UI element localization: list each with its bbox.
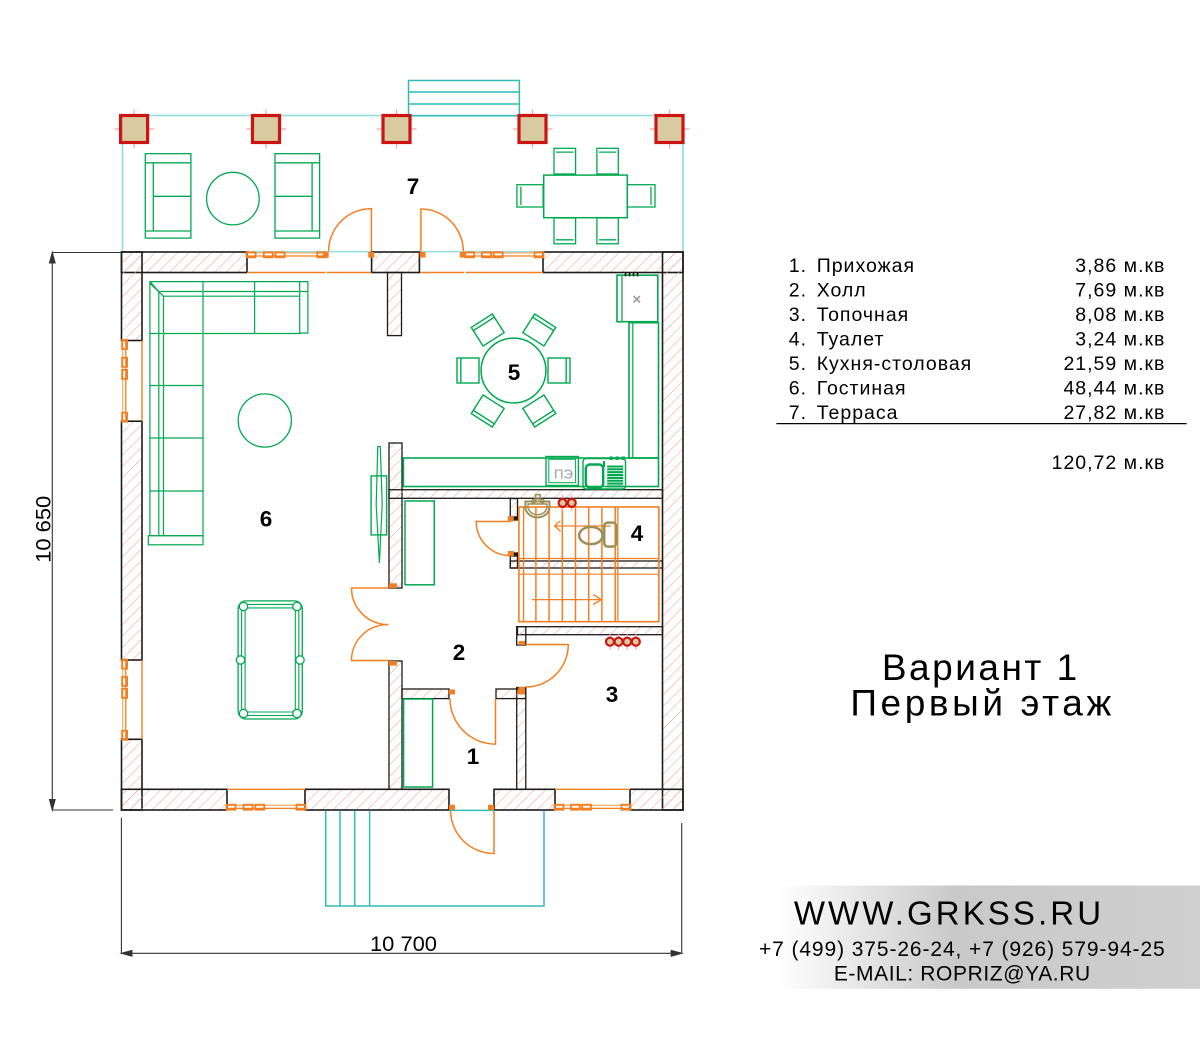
svg-text:27,82 м.кв: 27,82 м.кв — [1063, 402, 1165, 424]
svg-text:4.: 4. — [789, 329, 807, 351]
svg-text:1: 1 — [467, 744, 480, 769]
svg-text:6.: 6. — [789, 378, 807, 400]
svg-text:7.: 7. — [789, 402, 807, 424]
svg-text:120,72 м.кв: 120,72 м.кв — [1052, 452, 1166, 474]
svg-text:7,69 м.кв: 7,69 м.кв — [1075, 280, 1165, 302]
svg-text:6: 6 — [260, 507, 273, 532]
svg-text:48,44 м.кв: 48,44 м.кв — [1063, 378, 1165, 400]
svg-text:7: 7 — [407, 174, 420, 199]
svg-text:3,86 м.кв: 3,86 м.кв — [1075, 255, 1165, 277]
svg-text:ПЭ: ПЭ — [554, 467, 573, 482]
svg-text:10 700: 10 700 — [370, 932, 437, 956]
svg-text:Терраса: Терраса — [817, 402, 899, 424]
svg-text:5: 5 — [508, 360, 521, 385]
svg-text:WWW.GRKSS.RU: WWW.GRKSS.RU — [794, 895, 1104, 932]
svg-text:8,08 м.кв: 8,08 м.кв — [1075, 304, 1165, 326]
svg-text:Топочная: Топочная — [817, 304, 910, 326]
svg-text:Кухня-столовая: Кухня-столовая — [817, 353, 973, 375]
svg-text:4: 4 — [631, 521, 644, 546]
svg-text:Первый этаж: Первый этаж — [850, 682, 1114, 723]
svg-text:10 650: 10 650 — [32, 496, 56, 563]
svg-text:+7 (499) 375-26-24, +7 (926) 5: +7 (499) 375-26-24, +7 (926) 579-94-25 — [759, 938, 1166, 961]
svg-text:2: 2 — [453, 640, 466, 665]
svg-text:1.: 1. — [789, 255, 807, 277]
svg-text:21,59 м.кв: 21,59 м.кв — [1063, 353, 1165, 375]
svg-text:5.: 5. — [789, 353, 807, 375]
svg-text:3: 3 — [606, 682, 619, 707]
svg-text:3.: 3. — [789, 304, 807, 326]
svg-text:E-MAIL: ROPRIZ@YA.RU: E-MAIL: ROPRIZ@YA.RU — [834, 963, 1091, 986]
svg-text:3,24 м.кв: 3,24 м.кв — [1075, 329, 1165, 351]
svg-text:Туалет: Туалет — [817, 329, 885, 351]
svg-text:Холл: Холл — [817, 280, 867, 302]
svg-text:Прихожая: Прихожая — [817, 255, 915, 277]
svg-text:2.: 2. — [789, 280, 807, 302]
svg-text:Гостиная: Гостиная — [817, 378, 907, 400]
